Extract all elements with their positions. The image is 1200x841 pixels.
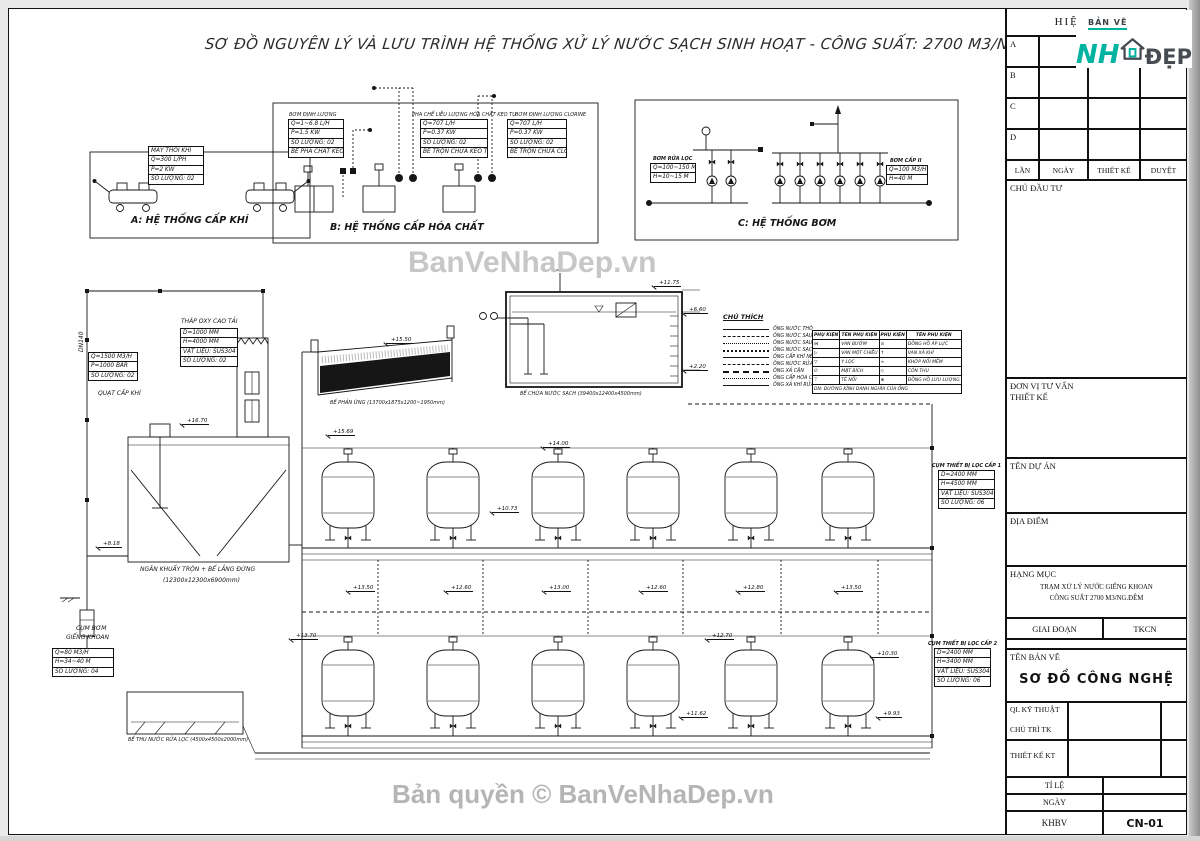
col-header-ngay: NGÀY <box>1039 160 1088 180</box>
project-box: TÊN DỰ ÁN <box>1006 458 1187 513</box>
elevation-marker: +11.75 <box>654 280 681 287</box>
diagram-b-unit3-table: Q=707 L/HP=0.37 KW SỐ LƯỢNG: 02BỂ TRỘN C… <box>507 119 567 158</box>
diagram-a-caption: A: HỆ THỐNG CẤP KHÍ <box>131 215 248 226</box>
diagram-b-unit2-table: Q=707 L/HP=0.37 KW SỐ LƯỢNG: 02BỂ TRỘN C… <box>420 119 488 158</box>
diagram-c-right-table: Q=100 M3/HH=40 M <box>886 165 928 185</box>
col-header-duyet: DUYỆT <box>1140 160 1187 180</box>
well-label-2: GIẾNG KHOAN <box>66 634 109 641</box>
legend-line-sample <box>723 385 769 386</box>
elevation-marker: +12.80 <box>738 585 765 592</box>
sig-labels-box: QL KỸ THUẬT CHỦ TRÌ TK <box>1006 702 1068 740</box>
schematic-linework <box>0 0 1005 841</box>
revision-cell <box>1039 129 1088 160</box>
legend-line-sample <box>723 336 769 337</box>
revision-cell <box>1088 67 1140 98</box>
revision-row-c: C <box>1006 98 1039 129</box>
watermark-center: BanVeNhaDep.vn <box>408 246 656 280</box>
reaction-trough <box>302 326 454 395</box>
diagram-b-caption: B: HỆ THỐNG CẤP HÓA CHẤT <box>330 222 484 233</box>
elevation-marker: +2.20 <box>684 364 708 371</box>
revision-cell <box>1039 67 1088 98</box>
col-header-thietke: THIẾT KẾ <box>1088 160 1140 180</box>
drawing-name: SƠ ĐỒ CÔNG NGHỆ <box>1007 672 1186 687</box>
mixer-label: NGĂN KHUẤY TRỘN + BỂ LẮNG ĐỨNG <box>140 566 255 573</box>
logo-dep-text: ĐẸP <box>1145 47 1192 68</box>
elevation-marker: +10.73 <box>492 506 519 513</box>
consultant-box: ĐƠN VỊ TƯ VẤN THIẾT KẾ <box>1006 378 1187 458</box>
elevation-marker: +9.93 <box>878 711 902 718</box>
location-box: ĐỊA ĐIỂM <box>1006 513 1187 566</box>
legend-item: ỐNG CẤP HÓA CHẤT <box>723 375 822 382</box>
legend-item: ỐNG XẢ CẶN <box>723 368 804 375</box>
revision-cell <box>1140 129 1187 160</box>
legend-line-sample <box>723 364 769 365</box>
page-edge-bottom <box>0 836 1200 841</box>
drawing-title: SƠ ĐỒ NGUYÊN LÝ VÀ LƯU TRÌNH HỆ THỐNG XỬ… <box>204 35 1080 53</box>
title-block: HIỆU CHỈNH A B C D LẦN NGÀY THIẾT KẾ DUY… <box>1005 8 1186 835</box>
diagram-c-caption: C: HỆ THỐNG BƠM <box>738 218 836 229</box>
elevation-marker: +12.60 <box>641 585 668 592</box>
diagram-b-unit2-title: PHA CHẾ LIỀU LƯỢNG HÓA CHẤT KEO TỤ <box>412 112 516 118</box>
legend-line-sample <box>723 329 769 330</box>
elevation-marker: +12.60 <box>446 585 473 592</box>
elevation-marker: +14.00 <box>543 441 570 448</box>
elevation-marker: +13.50 <box>348 585 375 592</box>
chemical-supply-diagram <box>273 86 598 243</box>
revision-cell <box>1088 129 1140 160</box>
legend-line-sample <box>723 378 769 379</box>
scale-value-cell <box>1103 777 1187 794</box>
revision-row-d: D <box>1006 129 1039 160</box>
diagram-b-unit3-title: BƠM ĐỊNH LƯỢNG CLORINE <box>515 112 586 118</box>
diagram-a-spec-table: MÁY THỔI KHÍQ=300 L/PH P=2 KWSỐ LƯỢNG: 0… <box>148 146 204 185</box>
sig-cell <box>1068 702 1161 740</box>
elevation-marker: +8.18 <box>98 541 122 548</box>
elevation-marker: +13.50 <box>836 585 863 592</box>
page-edge-right <box>1189 0 1200 841</box>
revision-row-a: A <box>1006 36 1039 67</box>
spacer-row <box>1006 639 1187 649</box>
legend-line-sample <box>723 350 769 352</box>
house-icon <box>1120 30 1145 68</box>
pipe-size-label: DN140 <box>78 331 85 352</box>
elevation-marker: +10.30 <box>872 651 899 658</box>
oxidation-tower <box>85 289 268 556</box>
legend-line-sample <box>723 371 769 373</box>
diagram-c-right-title: BƠM CẤP II <box>890 158 921 164</box>
trough-label: BỂ PHẢN ỨNG (13700x1875x1200~1950mm) <box>330 400 445 406</box>
elevation-marker: +16.70 <box>182 418 209 425</box>
elevation-marker: +12.70 <box>707 633 734 640</box>
legend-line-sample <box>723 343 769 344</box>
date-value-cell <box>1103 794 1187 811</box>
clean-water-tank <box>480 270 701 387</box>
fittings-table: PHỤ KIỆNTÊN PHỤ KIỆN PHỤ KIỆNTÊN PHỤ KIỆ… <box>812 330 962 394</box>
diagram-b-unit1-table: Q=1~6.8 L/HP=1.5 KW SỐ LƯỢNG: 02BỂ PHA C… <box>288 119 344 158</box>
scale-label: TỈ LỆ <box>1006 777 1103 794</box>
well-spec-table: Q=80 M3/HH=34~40 M SỐ LƯỢNG: 04 <box>52 648 114 677</box>
cluster2-label: CỤM THIẾT BỊ LỌC CẤP 2 <box>928 641 997 647</box>
sheet-number: CN-01 <box>1103 811 1187 835</box>
investor-box: CHỦ ĐẦU TƯ <box>1006 180 1187 378</box>
elevation-marker: +13.00 <box>544 585 571 592</box>
date-label: NGÀY <box>1006 794 1103 811</box>
logo-banve-text: BẢN VẼ <box>1088 18 1127 30</box>
legend-line-sample <box>723 357 769 358</box>
sig-cell <box>1161 740 1187 777</box>
legend-item: ỐNG NƯỚC THÔ <box>723 326 813 333</box>
banvenhadep-logo: BẢN VẼ NH ĐẸP <box>1076 10 1192 68</box>
revision-cell <box>1088 98 1140 129</box>
well-label-1: CỤM BƠM <box>76 625 106 632</box>
drawing-name-box: TÊN BẢN VẼ SƠ ĐỒ CÔNG NGHỆ <box>1006 649 1187 702</box>
legend-item: ỐNG XẢ KHÍ RỬA LỌC <box>723 382 825 389</box>
stage-value: TKCN <box>1103 618 1187 639</box>
diagram-c-left-title: BƠM RỬA LỌC <box>653 156 692 162</box>
wash-basin-label: BỂ THU NƯỚC RỬA LỌC (4500x4500x2000mm) <box>128 737 248 743</box>
elevation-marker: +15.69 <box>328 429 355 436</box>
sig3-label-box: THIẾT KẾ KT <box>1006 740 1068 777</box>
cluster1-spec-table: D=2400 MMH=4500 MM VẬT LIỆU: SUS304SỐ LƯ… <box>938 470 995 509</box>
elevation-marker: +11.62 <box>681 711 708 718</box>
tower-label: THÁP OXY CAO TẢI <box>181 318 238 325</box>
stage-label: GIAI ĐOẠN <box>1006 618 1103 639</box>
revision-cell <box>1140 98 1187 129</box>
col-header-lan: LẦN <box>1006 160 1039 180</box>
category-line2: CÔNG SUẤT 2700 M3/NG.ĐÊM <box>1007 595 1186 602</box>
diagram-c-left-table: Q=100~150 M3/HH=10~15 M <box>650 163 696 183</box>
watermark-bottom: Bản quyền © BanVeNhaDep.vn <box>392 779 774 810</box>
elevation-marker: +15.50 <box>386 337 413 344</box>
tower-spec-table: D=1000 MMH=4000 MM VẬT LIỆU: SUS304SỐ LƯ… <box>180 328 238 367</box>
legend-item: ỐNG CẤP KHÍ NÉN <box>723 354 817 361</box>
clean-tank-label: BỂ CHỨA NƯỚC SẠCH (39400x12400x4500mm) <box>520 391 642 397</box>
revision-cell <box>1140 67 1187 98</box>
elevation-marker: +13.70 <box>291 633 318 640</box>
sig-cell <box>1161 702 1187 740</box>
legend-item: ỐNG NƯỚC RỬA LỌC <box>723 361 824 368</box>
logo-nh-text: NH <box>1076 42 1120 68</box>
elevation-marker: +6.60 <box>684 307 708 314</box>
legend-title: CHÚ THÍCH <box>723 313 763 321</box>
backwash-basin <box>127 692 930 759</box>
category-box: HẠNG MỤC TRẠM XỬ LÝ NƯỚC GIẾNG KHOAN CÔN… <box>1006 566 1187 618</box>
diagram-b-unit1-title: BƠM ĐỊNH LƯỢNG <box>289 112 337 118</box>
filter-vessels-row1 <box>322 448 874 548</box>
category-line1: TRẠM XỬ LÝ NƯỚC GIẾNG KHOAN <box>1007 584 1186 591</box>
filter-vessels-row2 <box>322 636 874 736</box>
fan-spec-table: Q=1500 M3/HP=1000 BAR SỐ LƯỢNG: 02 <box>88 352 138 381</box>
cad-drawing-viewport: SƠ ĐỒ NGUYÊN LÝ VÀ LƯU TRÌNH HỆ THỐNG XỬ… <box>0 0 1200 841</box>
khbv-label: KHBV <box>1006 811 1103 835</box>
sig-cell <box>1068 740 1161 777</box>
cluster2-spec-table: D=2400 MMH=3400 MM VẬT LIỆU: SUS304SỐ LƯ… <box>934 648 991 687</box>
cluster1-label: CỤM THIẾT BỊ LỌC CẤP 1 <box>932 463 1001 469</box>
revision-row-b: B <box>1006 67 1039 98</box>
fan-label: QUẠT CẤP KHÍ <box>98 390 141 397</box>
revision-cell <box>1039 98 1088 129</box>
mixer-dims: (12300x12300x6900mm) <box>163 577 240 584</box>
